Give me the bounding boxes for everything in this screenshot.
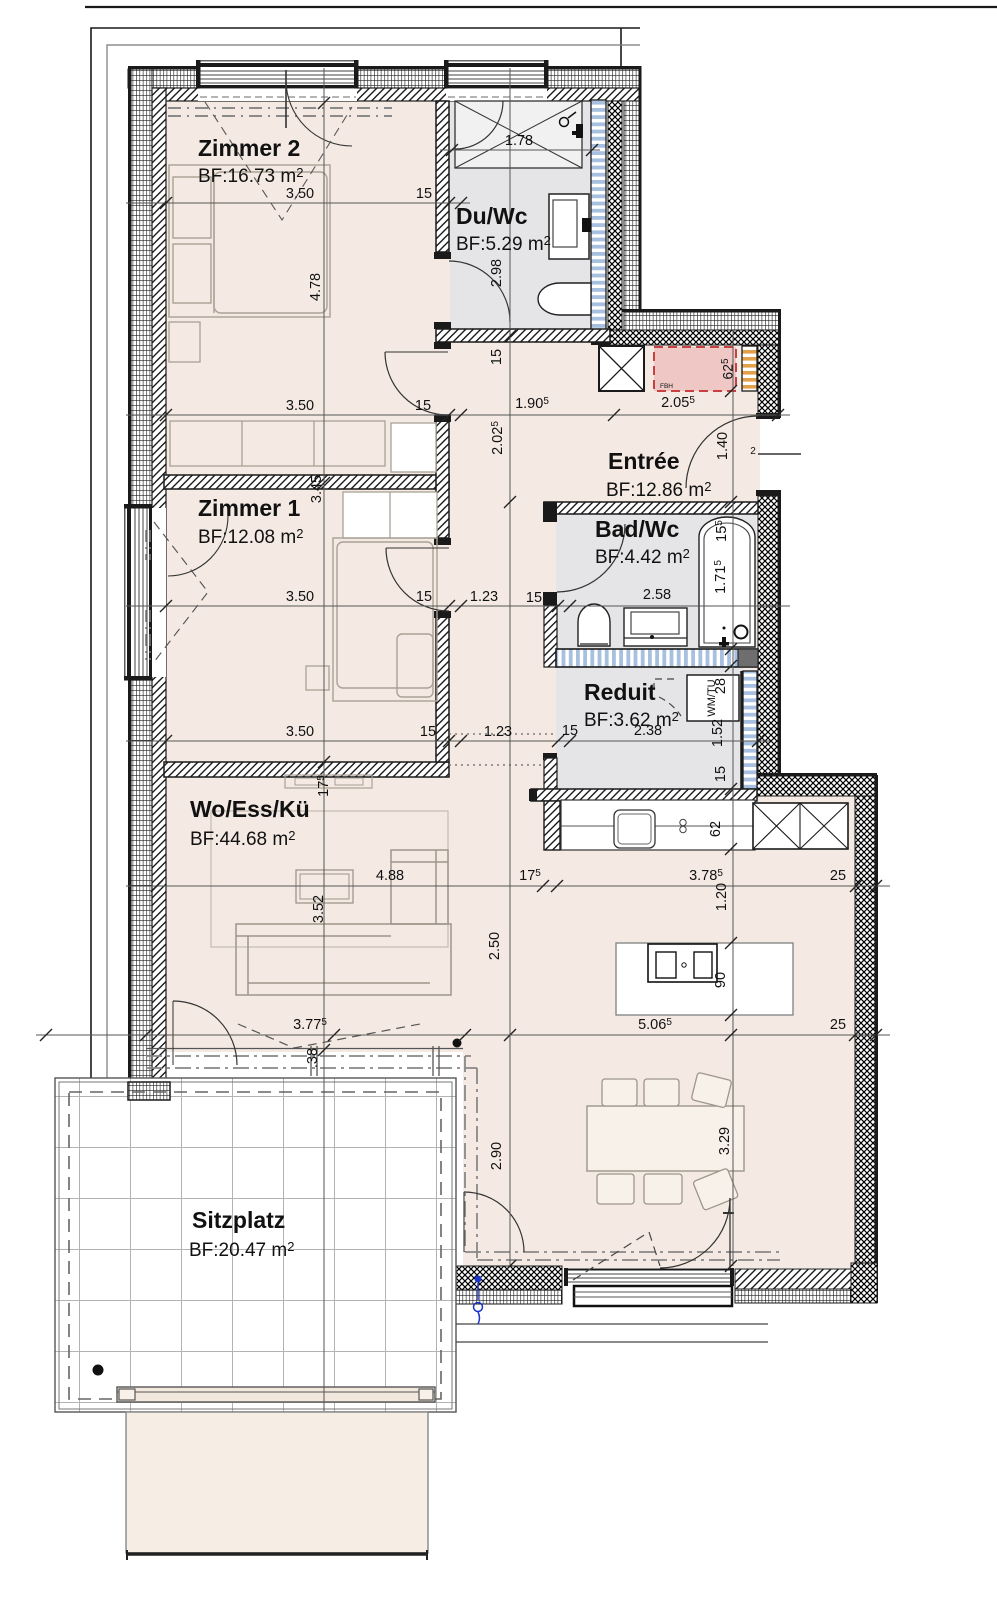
svg-text:1.78: 1.78 [505, 133, 533, 149]
svg-text:BF:20.47 m2: BF:20.47 m2 [189, 1239, 294, 1261]
svg-text:3.45: 3.45 [309, 475, 325, 503]
svg-text:Wo/Ess/Kü: Wo/Ess/Kü [190, 796, 310, 822]
svg-text:4.88: 4.88 [376, 868, 404, 884]
svg-text:2: 2 [750, 446, 756, 457]
svg-text:1.40: 1.40 [715, 432, 731, 460]
svg-text:15: 15 [415, 398, 431, 414]
svg-text:15: 15 [416, 186, 432, 202]
svg-text:15: 15 [562, 723, 578, 739]
svg-text:.38: .38 [305, 1048, 321, 1068]
svg-text:1.23: 1.23 [470, 589, 498, 605]
svg-text:15: 15 [713, 766, 729, 782]
svg-text:1.23: 1.23 [484, 724, 512, 740]
svg-text:28: 28 [713, 678, 729, 694]
svg-text:Sitzplatz: Sitzplatz [192, 1207, 285, 1233]
svg-text:BF:4.42 m2: BF:4.42 m2 [595, 546, 690, 568]
svg-text:1.52: 1.52 [710, 719, 726, 747]
svg-text:3.50: 3.50 [286, 186, 314, 202]
svg-text:15: 15 [489, 349, 505, 365]
svg-text:2.90: 2.90 [489, 1142, 505, 1170]
svg-text:3.50: 3.50 [286, 398, 314, 414]
svg-text:15: 15 [416, 589, 432, 605]
svg-text:Entrée: Entrée [608, 448, 680, 474]
svg-text:3.50: 3.50 [286, 724, 314, 740]
svg-text:BF:16.73 m2: BF:16.73 m2 [198, 165, 303, 187]
svg-text:15: 15 [526, 590, 542, 606]
svg-text:Zimmer 1: Zimmer 1 [198, 495, 300, 521]
svg-text:BF:5.29 m2: BF:5.29 m2 [456, 233, 551, 255]
svg-text:FBH: FBH [660, 383, 673, 390]
svg-text:2.58: 2.58 [643, 587, 671, 603]
svg-text:4.78: 4.78 [308, 273, 324, 301]
svg-text:2.98: 2.98 [489, 259, 505, 287]
svg-text:1.20: 1.20 [714, 883, 730, 911]
svg-text:3.29: 3.29 [717, 1127, 733, 1155]
svg-text:BF:12.08 m2: BF:12.08 m2 [198, 526, 303, 548]
svg-text:15: 15 [420, 724, 436, 740]
svg-text:Reduit: Reduit [584, 679, 656, 705]
svg-text:25: 25 [830, 1017, 846, 1033]
svg-text:BF:12.86 m2: BF:12.86 m2 [606, 479, 711, 501]
svg-text:BF:3.62 m2: BF:3.62 m2 [584, 709, 679, 731]
svg-text:Zimmer 2: Zimmer 2 [198, 135, 300, 161]
svg-text:3.52: 3.52 [311, 895, 327, 923]
svg-text:62: 62 [708, 821, 724, 837]
svg-text:90: 90 [713, 972, 729, 988]
svg-text:3.50: 3.50 [286, 589, 314, 605]
svg-text:2.50: 2.50 [487, 932, 503, 960]
svg-text:25: 25 [830, 868, 846, 884]
svg-text:BF:44.68 m2: BF:44.68 m2 [190, 828, 295, 850]
svg-text:Bad/Wc: Bad/Wc [595, 516, 680, 542]
svg-text:Du/Wc: Du/Wc [456, 203, 528, 229]
